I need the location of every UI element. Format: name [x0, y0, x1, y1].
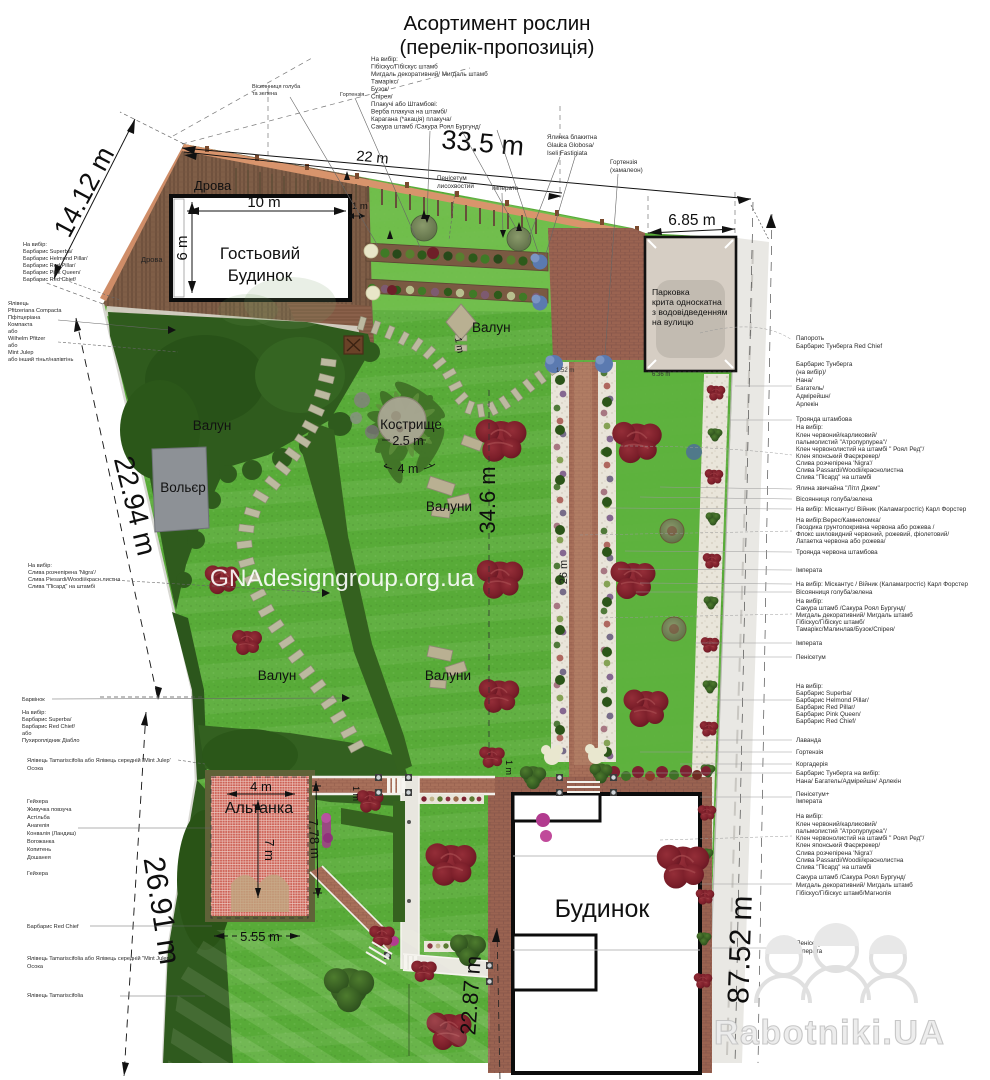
- svg-text:Вогожанка: Вогожанка: [27, 839, 55, 845]
- svg-text:Клен червонолистий на штамбі ": Клен червонолистий на штамбі " Роял Ред"…: [796, 834, 925, 842]
- svg-text:з водовідведенням: з водовідведенням: [652, 307, 728, 317]
- svg-text:Вісоянниця голуба/зелена: Вісоянниця голуба/зелена: [796, 495, 873, 503]
- svg-text:Тамарікс/Малинлав/Бузок/Спірея: Тамарікс/Малинлав/Бузок/Спірея/: [796, 625, 895, 633]
- svg-text:2.5 m: 2.5 m: [392, 434, 423, 448]
- svg-text:Мигдаль декоративний/ Мигдаль: Мигдаль декоративний/ Мигдаль штамб: [796, 611, 913, 619]
- svg-text:Валуни: Валуни: [426, 499, 472, 514]
- svg-text:Коргадерія: Коргадерія: [796, 760, 828, 768]
- svg-text:Осока: Осока: [27, 766, 44, 772]
- svg-text:6.85 m: 6.85 m: [668, 212, 715, 229]
- svg-text:Mint Julep: Mint Julep: [8, 350, 34, 356]
- svg-text:Імперата: Імперата: [796, 798, 823, 805]
- svg-text:Будинок: Будинок: [555, 895, 651, 923]
- svg-text:Вісоянниця голуба: Вісоянниця голуба: [252, 84, 301, 90]
- svg-text:або: або: [8, 329, 17, 335]
- svg-text:Iseli Fastigiata: Iseli Fastigiata: [547, 150, 588, 157]
- svg-text:На вибір:: На вибір:: [796, 812, 823, 820]
- svg-text:Парковка: Парковка: [652, 287, 690, 297]
- svg-text:Барбарис Red Pillar/: Барбарис Red Pillar/: [796, 703, 855, 711]
- svg-text:Барбарис Helmond Pillar/: Барбарис Helmond Pillar/: [796, 696, 869, 704]
- svg-text:1 m: 1 m: [351, 786, 361, 801]
- svg-text:Мигдаль декоративний/ Мигдаль: Мигдаль декоративний/ Мигдаль штамб: [796, 881, 913, 889]
- svg-text:Асортимент рослин: Асортимент рослин: [403, 12, 590, 35]
- svg-text:пальмолистий "Атропурпуреа"/: пальмолистий "Атропурпуреа"/: [796, 438, 887, 446]
- svg-text:або: або: [22, 731, 31, 737]
- svg-text:Слива Passardi/Woodii/красноли: Слива Passardi/Woodii/краснолистна: [796, 857, 904, 864]
- svg-text:7 m: 7 m: [262, 839, 277, 861]
- svg-text:Гібіскус/Гібіскус штамб/Магнол: Гібіскус/Гібіскус штамб/Магнолія: [796, 889, 891, 897]
- svg-text:(хамалеон): (хамалеон): [610, 167, 643, 174]
- svg-text:лисохвостий: лисохвостий: [437, 182, 474, 190]
- svg-text:Сакура штамб /Сакура Роял Бург: Сакура штамб /Сакура Роял Бургунд/: [796, 604, 906, 612]
- svg-text:Імперата: Імперата: [796, 567, 823, 574]
- svg-text:або: або: [8, 343, 17, 349]
- svg-text:Гібіскус/Гібіскус штамб/: Гібіскус/Гібіскус штамб/: [796, 618, 865, 626]
- svg-text:або інший тіньл/напівтінь: або інший тіньл/напівтінь: [8, 356, 73, 363]
- svg-text:Вісоянниця голуба/зелена: Вісоянниця голуба/зелена: [796, 588, 873, 596]
- svg-text:Барбарис Тунберга на вибір:: Барбарис Тунберга на вибір:: [796, 769, 880, 777]
- svg-text:Клен червоний/карликовий/: Клен червоний/карликовий/: [796, 431, 877, 439]
- svg-text:Папороть: Папороть: [796, 335, 825, 342]
- svg-text:Дрова: Дрова: [141, 255, 163, 264]
- svg-text:4 m: 4 m: [250, 779, 272, 794]
- svg-text:Гостьовий: Гостьовий: [220, 244, 300, 263]
- svg-text:Лаванда: Лаванда: [796, 737, 822, 744]
- svg-text:Спірея/: Спірея/: [371, 93, 393, 101]
- svg-text:Пухироплідник Діабло: Пухироплідник Діабло: [22, 738, 80, 744]
- svg-text:На вибір:: На вибір:: [23, 242, 47, 248]
- svg-text:Гортензія: Гортензія: [610, 158, 637, 166]
- svg-text:Ялівець Tamariscifolia або Ялі: Ялівець Tamariscifolia або Ялівець серед…: [27, 757, 171, 764]
- svg-text:Сакура штамб /Сакура Роял Бург: Сакура штамб /Сакура Роял Бургунд/: [371, 123, 481, 131]
- svg-text:Адмірейшн/: Адмірейшн/: [796, 392, 831, 400]
- svg-text:Слива розчепірена 'Nigra'/: Слива розчепірена 'Nigra'/: [796, 849, 873, 857]
- svg-text:Клен японський Фаєркрекер/: Клен японський Фаєркрекер/: [796, 841, 880, 849]
- svg-text:Валун: Валун: [193, 418, 232, 433]
- svg-text:Пенісетум: Пенісетум: [796, 653, 826, 661]
- svg-text:Слива Passardi/Woodii/красноли: Слива Passardi/Woodii/краснолистна: [796, 467, 904, 474]
- svg-text:Тамарікс/: Тамарікс/: [371, 78, 399, 86]
- svg-text:Імперата: Імперата: [492, 185, 519, 192]
- svg-text:Арлекін: Арлекін: [796, 400, 819, 408]
- svg-text:На вибір:: На вибір:: [22, 710, 46, 716]
- svg-text:На вибір: Міскантус / Війник (: На вибір: Міскантус / Війник (Каламагрос…: [796, 580, 969, 588]
- svg-text:Дошанея: Дошанея: [27, 855, 51, 861]
- svg-text:Осока: Осока: [27, 964, 44, 970]
- svg-text:Валун: Валун: [258, 668, 297, 683]
- svg-text:4 m: 4 m: [398, 462, 419, 476]
- svg-text:крита односкатна: крита односкатна: [652, 297, 722, 307]
- svg-text:Ялина звичайна "Літл Джем": Ялина звичайна "Літл Джем": [796, 484, 880, 492]
- svg-text:Слива Piesardi/Woodii/красн.ли: Слива Piesardi/Woodii/красн.листна: [28, 577, 121, 583]
- svg-text:Троянда червона штамбова: Троянда червона штамбова: [796, 548, 878, 556]
- svg-text:Верба плакуча на штамбі/: Верба плакуча на штамбі/: [371, 108, 447, 116]
- svg-text:Конвалія (Ландиш): Конвалія (Ландиш): [27, 831, 76, 837]
- svg-text:пальмолистий "Атропурпуреа"/: пальмолистий "Атропурпуреа"/: [796, 827, 887, 835]
- svg-text:Кострище: Кострище: [380, 417, 442, 432]
- svg-text:На вибір:: На вибір:: [796, 423, 823, 431]
- svg-text:Ялівець Tamariscifolia: Ялівець Tamariscifolia: [27, 993, 84, 999]
- svg-text:Ялівець Tamariscifolia або Ялі: Ялівець Tamariscifolia або Ялівець серед…: [27, 955, 171, 962]
- svg-text:Барбарис Red Chief/: Барбарис Red Chief/: [23, 277, 77, 283]
- svg-text:1.52 m: 1.52 m: [556, 368, 574, 374]
- svg-text:Гейхера: Гейхера: [27, 798, 49, 805]
- svg-text:Барбарис Red Pillar/: Барбарис Red Pillar/: [23, 263, 76, 269]
- svg-text:Гортензія: Гортензія: [796, 748, 823, 756]
- svg-text:Астільба: Астільба: [27, 815, 51, 821]
- svg-text:Бузок/: Бузок/: [371, 86, 389, 93]
- svg-text:34.6 m: 34.6 m: [475, 466, 500, 533]
- svg-text:На вибір:: На вибір:: [796, 682, 823, 690]
- svg-text:Слива розчепірена 'Nigra'/: Слива розчепірена 'Nigra'/: [28, 570, 96, 576]
- svg-text:Барбарис Тунберга Red Chief: Барбарис Тунберга Red Chief: [796, 342, 882, 350]
- svg-text:5.55 m: 5.55 m: [240, 929, 280, 944]
- svg-text:Rabotniki.UA: Rabotniki.UA: [714, 1014, 945, 1052]
- svg-text:6 m: 6 m: [174, 235, 191, 260]
- svg-text:Барвінок: Барвінок: [22, 697, 45, 703]
- svg-text:На вибір: Міскантус/ Війник (К: На вибір: Міскантус/ Війник (Каламагрост…: [796, 505, 967, 513]
- svg-text:Гортензія: Гортензія: [340, 92, 364, 98]
- svg-text:Дрова: Дрова: [194, 178, 232, 193]
- svg-text:Клен червоний/карликовий/: Клен червоний/карликовий/: [796, 820, 877, 828]
- svg-text:Барбарис Pink Queen/: Барбарис Pink Queen/: [23, 270, 81, 276]
- svg-text:Живучка повзуча: Живучка повзуча: [27, 807, 72, 813]
- svg-text:10 m: 10 m: [247, 194, 280, 211]
- svg-text:1 m: 1 m: [504, 760, 514, 775]
- svg-text:Слива "Пісард" на штамбі: Слива "Пісард" на штамбі: [796, 863, 871, 871]
- svg-text:Валуни: Валуни: [425, 668, 471, 683]
- svg-text:Сакура штамб /Сакура Роял Бург: Сакура штамб /Сакура Роял Бургунд/: [796, 873, 906, 881]
- svg-text:Барбарис Red Chief/: Барбарис Red Chief/: [22, 724, 76, 730]
- svg-text:Слива "Пісард" на штамбі: Слива "Пісард" на штамбі: [796, 473, 871, 481]
- svg-text:Барбарис Red Chief/: Барбарис Red Chief/: [796, 717, 856, 725]
- svg-text:Барбарис Тунберга: Барбарис Тунберга: [796, 360, 853, 368]
- svg-text:На вибір:: На вибір:: [796, 597, 823, 605]
- svg-text:Барбарис Red Chief: Барбарис Red Chief: [27, 924, 79, 930]
- svg-text:Glauca Globosa/: Glauca Globosa/: [547, 142, 594, 149]
- svg-text:Троянда штамбова: Троянда штамбова: [796, 415, 852, 423]
- svg-text:Клен червонолистий на штамбі ": Клен червонолистий на штамбі " Роял Ред"…: [796, 445, 925, 453]
- svg-text:Пенісетум+: Пенісетум+: [796, 790, 830, 798]
- svg-text:Pfitzeriana Compacta: Pfitzeriana Compacta: [8, 308, 62, 314]
- svg-text:Клен японський Фаєркрекер/: Клен японський Фаєркрекер/: [796, 452, 880, 460]
- svg-text:Гібіскус/Гібіскус штамб: Гібіскус/Гібіскус штамб: [371, 63, 438, 71]
- svg-text:На вибір:: На вибір:: [28, 563, 52, 569]
- svg-text:та зелена: та зелена: [252, 91, 278, 97]
- svg-text:Нана/ Багатель/Адмірейшн/ Арле: Нана/ Багатель/Адмірейшн/ Арлекін: [796, 777, 901, 785]
- svg-text:Флокс шиловидний червоний, рож: Флокс шиловидний червоний, рожевий, фіол…: [796, 530, 949, 538]
- svg-text:Нана/: Нана/: [796, 377, 813, 384]
- svg-text:26 m: 26 m: [558, 560, 570, 584]
- svg-text:Гейхера: Гейхера: [27, 870, 49, 877]
- svg-text:Барбарис Pink Queen/: Барбарис Pink Queen/: [796, 710, 861, 718]
- svg-text:Ялинка блакитна: Ялинка блакитна: [547, 133, 597, 141]
- svg-text:Мигдаль декоративний/ Мигдаль: Мигдаль декоративний/ Мигдаль штамб: [371, 70, 488, 78]
- svg-text:Багатель/: Багатель/: [796, 385, 824, 392]
- svg-text:На вибір:Верес/Камнеломка/: На вибір:Верес/Камнеломка/: [796, 516, 881, 524]
- svg-text:(перелік-пропозиція): (перелік-пропозиція): [399, 36, 594, 59]
- svg-text:Слива "Пісард" на штамбі: Слива "Пісард" на штамбі: [28, 584, 95, 590]
- svg-text:Валун: Валун: [472, 320, 511, 335]
- svg-text:Латаетка червона або рожева/: Латаетка червона або рожева/: [796, 537, 886, 545]
- svg-text:Карагана (*акація) плакуча/: Карагана (*акація) плакуча/: [371, 115, 452, 123]
- svg-text:Барбарис Superba/: Барбарис Superba/: [23, 249, 73, 255]
- svg-text:Барбарис Helmond Pillar/: Барбарис Helmond Pillar/: [23, 256, 88, 262]
- svg-text:Копитень: Копитень: [27, 847, 51, 853]
- svg-text:Вольєр: Вольєр: [160, 480, 206, 495]
- svg-text:Пфітцеріана: Пфітцеріана: [8, 315, 41, 321]
- svg-text:Wilhelm Pfitzer: Wilhelm Pfitzer: [8, 336, 45, 342]
- svg-text:(на вибір)/: (на вибір)/: [796, 368, 826, 376]
- svg-text:Компакта: Компакта: [8, 322, 33, 328]
- svg-text:7.78 m: 7.78 m: [306, 818, 324, 859]
- svg-text:Імперата: Імперата: [796, 640, 823, 647]
- svg-text:Ялівець: Ялівець: [8, 301, 29, 307]
- svg-text:Слива розчепірена 'Nigra'/: Слива розчепірена 'Nigra'/: [796, 459, 873, 467]
- svg-text:GNAdesigngroup.org.ua: GNAdesigngroup.org.ua: [210, 565, 475, 592]
- svg-text:Барбарис Superba/: Барбарис Superba/: [22, 717, 72, 723]
- svg-text:Плакучі або Штамбові:: Плакучі або Штамбові:: [371, 100, 438, 108]
- svg-text:Пенісетум: Пенісетум: [437, 174, 467, 182]
- svg-text:Барбарис Superba/: Барбарис Superba/: [796, 689, 852, 697]
- svg-text:на вулицю: на вулицю: [652, 317, 694, 327]
- svg-text:6.36 m: 6.36 m: [652, 372, 670, 378]
- svg-text:Анагелія: Анагелія: [27, 823, 49, 829]
- svg-text:На вибір:: На вибір:: [371, 55, 398, 63]
- svg-text:87.52 m: 87.52 m: [722, 895, 759, 1004]
- svg-text:Гвоздика грунтопокривна червон: Гвоздика грунтопокривна червона або роже…: [796, 523, 935, 531]
